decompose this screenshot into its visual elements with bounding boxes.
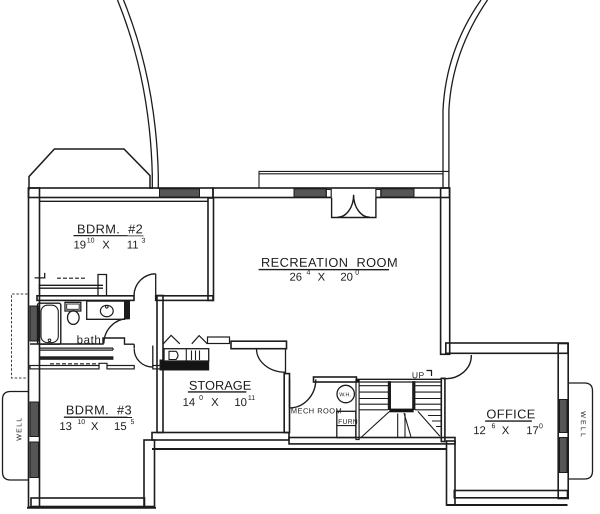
svg-text:13: 13 — [59, 421, 72, 433]
svg-text:6: 6 — [491, 423, 495, 430]
svg-text:STORAGE: STORAGE — [189, 378, 251, 393]
svg-text:0: 0 — [539, 423, 543, 430]
svg-text:10: 10 — [87, 238, 95, 245]
svg-text:20: 20 — [340, 272, 353, 284]
svg-text:0: 0 — [199, 395, 203, 402]
svg-text:X: X — [502, 425, 510, 437]
svg-text:12: 12 — [473, 425, 486, 437]
svg-text:10: 10 — [77, 419, 85, 426]
svg-text:3: 3 — [142, 238, 146, 245]
svg-text:0: 0 — [355, 270, 359, 277]
svg-text:X: X — [211, 397, 219, 409]
svg-text:4: 4 — [306, 270, 310, 277]
svg-text:X: X — [102, 240, 110, 252]
svg-text:bath: bath — [77, 335, 102, 347]
svg-text:5: 5 — [131, 419, 135, 426]
svg-text:WELL: WELL — [579, 411, 586, 439]
svg-text:10: 10 — [234, 397, 247, 409]
svg-text:19: 19 — [74, 240, 87, 252]
svg-text:14: 14 — [183, 397, 196, 409]
svg-text:W.H.: W.H. — [339, 392, 351, 398]
svg-text:WELL: WELL — [16, 417, 23, 441]
svg-text:BDRM. #2: BDRM. #2 — [77, 221, 143, 236]
svg-text:26: 26 — [289, 272, 302, 284]
svg-text:15: 15 — [114, 421, 127, 433]
svg-text:BDRM. #3: BDRM. #3 — [66, 402, 132, 417]
svg-text:OFFICE: OFFICE — [486, 406, 535, 421]
svg-text:FURN: FURN — [338, 419, 358, 426]
svg-text:X: X — [91, 421, 99, 433]
svg-text:MECH ROOM: MECH ROOM — [291, 406, 342, 415]
svg-text:17: 17 — [526, 425, 539, 437]
svg-text:11: 11 — [248, 395, 255, 402]
svg-text:UP: UP — [412, 370, 425, 380]
svg-text:11: 11 — [127, 240, 139, 252]
svg-text:X: X — [318, 272, 326, 284]
svg-text:RECREATION ROOM: RECREATION ROOM — [261, 255, 398, 270]
